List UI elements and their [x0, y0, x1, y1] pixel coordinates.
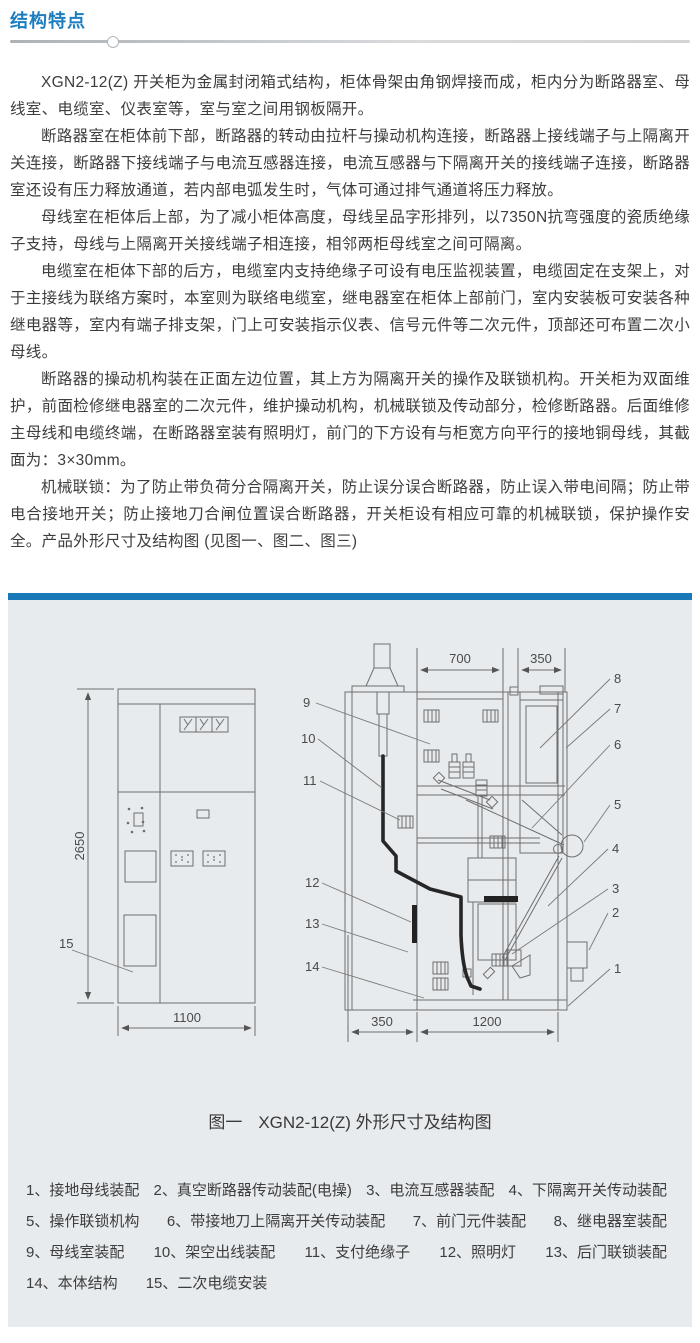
- legend-item: 7、前门元件装配: [413, 1211, 526, 1233]
- page-header: 结构特点: [0, 0, 700, 43]
- callout-14: 14: [305, 959, 319, 974]
- dim-label-700: 700: [449, 651, 471, 666]
- figure-caption: 图一XGN2-12(Z) 外形尺寸及结构图: [8, 1112, 692, 1134]
- dotted-plates: [171, 851, 225, 866]
- insulators: [398, 710, 507, 990]
- switch-symbols: [180, 717, 228, 732]
- legend-item: 12、照明灯: [439, 1242, 516, 1264]
- ct-bar: [484, 896, 518, 902]
- legend-item: 11、支付绝缘子: [305, 1242, 411, 1264]
- callout-6: 6: [614, 737, 621, 752]
- figure-caption-label: 图一: [208, 1113, 242, 1132]
- indicator-cluster: [127, 807, 146, 834]
- callout-5: 5: [614, 797, 621, 812]
- legend-row-3: 9、母线室装配 10、架空出线装配 11、支付绝缘子 12、照明灯 13、后门联…: [26, 1242, 667, 1264]
- legend-item: 14、本体结构: [26, 1273, 118, 1295]
- callout-2: 2: [612, 905, 619, 920]
- legend-item: 6、带接地刀上隔离开关传动装配: [167, 1211, 385, 1233]
- figure-legend: 1、接地母线装配 2、真空断路器传动装配(电操) 3、电流互感器装配 4、下隔离…: [8, 1180, 692, 1304]
- legend-item: 3、电流互感器装配: [366, 1180, 494, 1202]
- legend-item: 15、二次电缆安装: [146, 1273, 268, 1295]
- paragraph-3: 母线室在柜体后上部，为了减小柜体高度，母线呈品字形排列，以7350N抗弯强度的瓷…: [10, 204, 690, 258]
- paragraph-1: XGN2-12(Z) 开关柜为金属封闭箱式结构，柜体骨架由角钢焊接而成，柜内分为…: [10, 69, 690, 123]
- callout-11: 11: [303, 773, 317, 788]
- paragraph-4: 电缆室在柜体下部的后方，电缆室内支持绝缘子可设有电压监视装置，电缆固定在支架上，…: [10, 258, 690, 366]
- catalog-page: { "header": { "title": "结构特点" }, "conten…: [0, 0, 700, 1343]
- legend-item: 2、真空断路器传动装配(电操): [154, 1180, 352, 1202]
- right-mechanism-box: [567, 942, 587, 968]
- legend-row-4: 14、本体结构 15、二次电缆安装: [26, 1273, 667, 1295]
- dims-side: [348, 648, 565, 1042]
- dim-label-1200: 1200: [473, 1014, 502, 1029]
- legend-row-2: 5、操作联锁机构 6、带接地刀上隔离开关传动装配 7、前门元件装配 8、继电器室…: [26, 1211, 667, 1233]
- legend-row-1: 1、接地母线装配 2、真空断路器传动装配(电操) 3、电流互感器装配 4、下隔离…: [26, 1180, 667, 1202]
- title-divider: [10, 40, 690, 43]
- figure-drawing: 2650 1100 700 350 350 1200 15 9 10 11 12…: [8, 600, 692, 1060]
- dim-label-2650: 2650: [72, 832, 87, 861]
- bushing: [352, 644, 404, 756]
- legend-item: 5、操作联锁机构: [26, 1211, 139, 1233]
- paragraph-5: 断路器的操动机构装在正面左边位置，其上方为隔离开关的操作及联锁机构。开关柜为双面…: [10, 366, 690, 474]
- legend-item: 9、母线室装配: [26, 1242, 124, 1264]
- dim-label-350-bottom: 350: [371, 1014, 393, 1029]
- legend-item: 4、下隔离开关传动装配: [509, 1180, 667, 1202]
- callout-7: 7: [614, 701, 621, 716]
- paragraph-6: 机械联锁：为了防止带负荷分合隔离开关，防止误分误合断路器，防止误入带电间隔；防止…: [10, 474, 690, 555]
- body-text: XGN2-12(Z) 开关柜为金属封闭箱式结构，柜体骨架由角钢焊接而成，柜内分为…: [10, 69, 690, 555]
- busbar-assembly: [433, 754, 497, 809]
- callout-8: 8: [614, 671, 621, 686]
- paragraph-2: 断路器室在柜体前下部，断路器的转动由拉杆与操动机构连接，断路器上接线端子与上隔离…: [10, 123, 690, 204]
- callout-12: 12: [305, 875, 319, 890]
- callout-4: 4: [612, 841, 619, 856]
- section-title: 结构特点: [10, 7, 690, 33]
- callout-9: 9: [303, 695, 310, 710]
- callout-3: 3: [612, 881, 619, 896]
- figure-caption-title: XGN2-12(Z) 外形尺寸及结构图: [258, 1113, 491, 1132]
- panel-top-bar: [8, 593, 692, 600]
- legend-item: 10、架空出线装配: [154, 1242, 276, 1264]
- callout-1: 1: [614, 961, 621, 976]
- legend-item: 1、接地母线装配: [26, 1180, 139, 1202]
- callout-13: 13: [305, 916, 319, 931]
- dim-label-1100: 1100: [173, 1010, 201, 1025]
- callout-10: 10: [301, 731, 315, 746]
- front-view: [118, 689, 255, 1003]
- legend-item: 8、继电器室装配: [554, 1211, 667, 1233]
- divider-knob-icon: [107, 36, 119, 48]
- lamp-bar: [412, 905, 417, 943]
- figure-panel: 2650 1100 700 350 350 1200 15 9 10 11 12…: [8, 593, 692, 1327]
- callout-15: 15: [59, 936, 73, 951]
- dim-label-350-top: 350: [530, 651, 552, 666]
- legend-item: 13、后门联锁装配: [545, 1242, 667, 1264]
